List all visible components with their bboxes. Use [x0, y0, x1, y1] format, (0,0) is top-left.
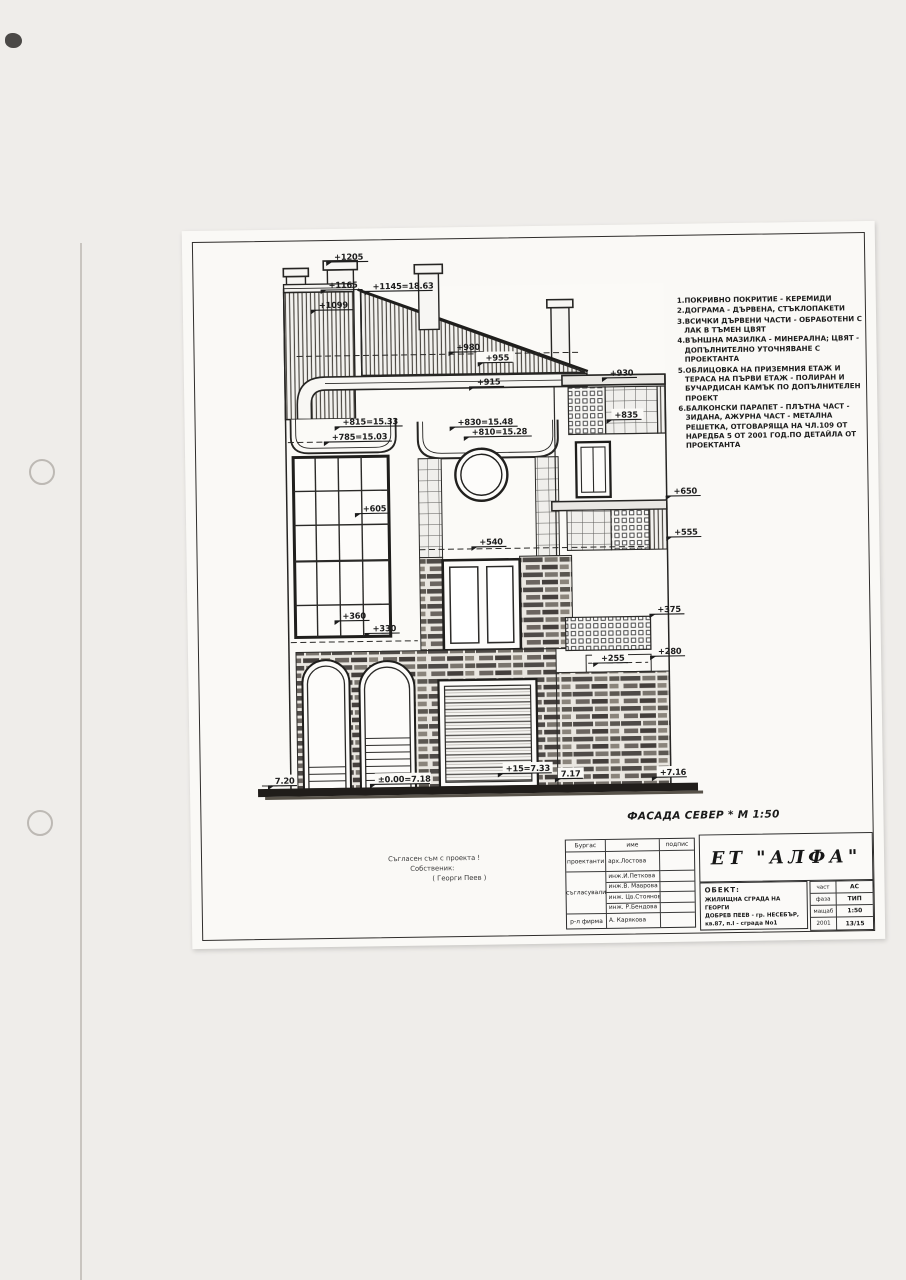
designer-name: арх.Лостова — [606, 851, 660, 872]
svg-text:+815=15.33: +815=15.33 — [342, 416, 398, 427]
svg-text:+330: +330 — [373, 623, 397, 633]
elevation-label: +555 — [666, 527, 701, 542]
meta-label-year: 2001 — [811, 918, 837, 930]
svg-text:+650: +650 — [674, 486, 698, 496]
round-window — [455, 448, 508, 501]
role-manager: р-л фирма — [567, 914, 607, 929]
signature-cell — [661, 913, 695, 928]
col-sign-header: подпис — [660, 839, 694, 852]
svg-text:+955: +955 — [486, 352, 510, 362]
company-name: ЕТ "АЛФА" — [711, 846, 862, 869]
manager-name: А. Карякова — [607, 913, 661, 928]
owner-line-3: ( Георги Пеев ) — [388, 873, 486, 885]
meta-table: част АС фаза ТИП мащаб 1:50 2001 13/15 — [809, 880, 874, 931]
agreed-name-1: инж.И.Петкова — [606, 871, 660, 882]
city-cell: Бургас — [566, 840, 606, 853]
upper-right-balcony — [562, 374, 666, 435]
signature-cell — [660, 871, 694, 882]
svg-text:±0.00=7.18: ±0.00=7.18 — [378, 774, 431, 785]
object-line-3: кв.87, п.I - сграда No1 — [705, 919, 805, 929]
svg-text:+555: +555 — [674, 527, 698, 537]
note-item: 4.ВЪНШНА МАЗИЛКА - МИНЕРАЛНА; ЦВЯТ - ДОП… — [677, 334, 862, 365]
agreed-name-4: инж. Р.Бендова — [607, 903, 661, 914]
svg-text:+605: +605 — [363, 503, 387, 513]
agreed-name-2: инж.В. Маврова — [606, 882, 660, 893]
svg-text:+1165: +1165 — [328, 280, 358, 290]
elevation-label: +650 — [666, 486, 701, 501]
svg-text:+360: +360 — [342, 610, 366, 620]
svg-text:+835: +835 — [614, 409, 638, 419]
svg-text:+980: +980 — [456, 342, 480, 352]
svg-text:+1205: +1205 — [334, 251, 364, 261]
scanned-page: { "notes": [ "1.ПОКРИВНО ПОКРИТИЕ - КЕРЕ… — [0, 0, 906, 1280]
meta-value-sheet: 13/15 — [837, 917, 873, 930]
svg-text:+375: +375 — [657, 604, 681, 614]
underlying-page-edge — [80, 243, 82, 1280]
scan-ink-blob — [5, 33, 22, 48]
signature-cell — [661, 902, 695, 913]
title-block: Бургас име подпис проектанти арх.Лостова… — [565, 832, 872, 935]
note-item: 3.ВСИЧКИ ДЪРВЕНИ ЧАСТИ - ОБРАБОТЕНИ С ЛА… — [677, 314, 862, 335]
company-box: ЕТ "АЛФА" — [699, 832, 874, 883]
col-name-header: име — [606, 839, 660, 852]
meta-label-part: част — [810, 882, 836, 894]
note-item: 6.БАЛКОНСКИ ПАРАПЕТ - ПЛЪТНА ЧАСТ - ЗИДА… — [678, 401, 864, 451]
arched-window — [302, 660, 351, 790]
svg-text:+1145=18.63: +1145=18.63 — [372, 280, 434, 291]
svg-text:+1099: +1099 — [319, 300, 349, 310]
svg-text:+915: +915 — [477, 376, 501, 386]
meta-label-phase: фаза — [811, 894, 837, 906]
svg-text:+7.16: +7.16 — [660, 767, 687, 777]
curved-awnings — [291, 416, 559, 461]
object-line-1: ЖИЛИЩНА СГРАДА НА ГЕОРГИ — [705, 895, 805, 913]
object-label: ОБЕКТ: — [704, 885, 804, 894]
notes-list: 1.ПОКРИВНО ПОКРИТИЕ - КЕРЕМИДИ 2.ДОГРАМА… — [677, 293, 864, 451]
svg-text:+540: +540 — [479, 536, 503, 546]
signature-cell — [661, 892, 695, 903]
owner-approval-note: Съгласен съм с проекта ! Собственик: ( Г… — [388, 853, 487, 885]
signatures-table: Бургас име подпис проектанти арх.Лостова… — [565, 838, 696, 930]
drawing-sheet: +1205 +1165 +1145=18.63 +1099 +980 +955 … — [182, 221, 886, 949]
svg-text:+15=7.33: +15=7.33 — [506, 763, 551, 774]
svg-text:+930: +930 — [610, 367, 634, 377]
punch-hole-bottom — [27, 810, 53, 836]
meta-value-phase: ТИП — [837, 893, 873, 906]
arched-door — [359, 661, 416, 792]
signature-cell — [660, 881, 694, 892]
svg-text:+255: +255 — [601, 653, 625, 663]
role-designer: проектанти — [566, 852, 606, 873]
svg-text:+785=15.03: +785=15.03 — [332, 431, 388, 442]
signature-cell — [660, 851, 694, 872]
svg-text:7.17: 7.17 — [561, 768, 581, 778]
meta-value-part: АС — [836, 881, 872, 894]
agreed-name-3: инж. Цв.Стоянова — [607, 892, 661, 903]
punch-hole-top — [29, 459, 55, 485]
object-box: ОБЕКТ: ЖИЛИЩНА СГРАДА НА ГЕОРГИ ДОБРЕВ П… — [699, 881, 808, 931]
svg-text:7.20: 7.20 — [275, 776, 295, 786]
svg-text:+810=15.28: +810=15.28 — [472, 426, 528, 437]
svg-text:+280: +280 — [658, 646, 682, 656]
note-item: 5.ОБЛИЦОВКА НА ПРИЗЕМНИЯ ЕТАЖ И ТЕРАСА Н… — [678, 363, 864, 403]
role-agreed: съгласували — [566, 872, 607, 915]
center-window — [420, 555, 573, 650]
meta-value-scale: 1:50 — [837, 905, 873, 918]
owner-line-1: Съгласен съм с проекта ! — [388, 853, 486, 865]
meta-label-scale: мащаб — [811, 906, 837, 918]
